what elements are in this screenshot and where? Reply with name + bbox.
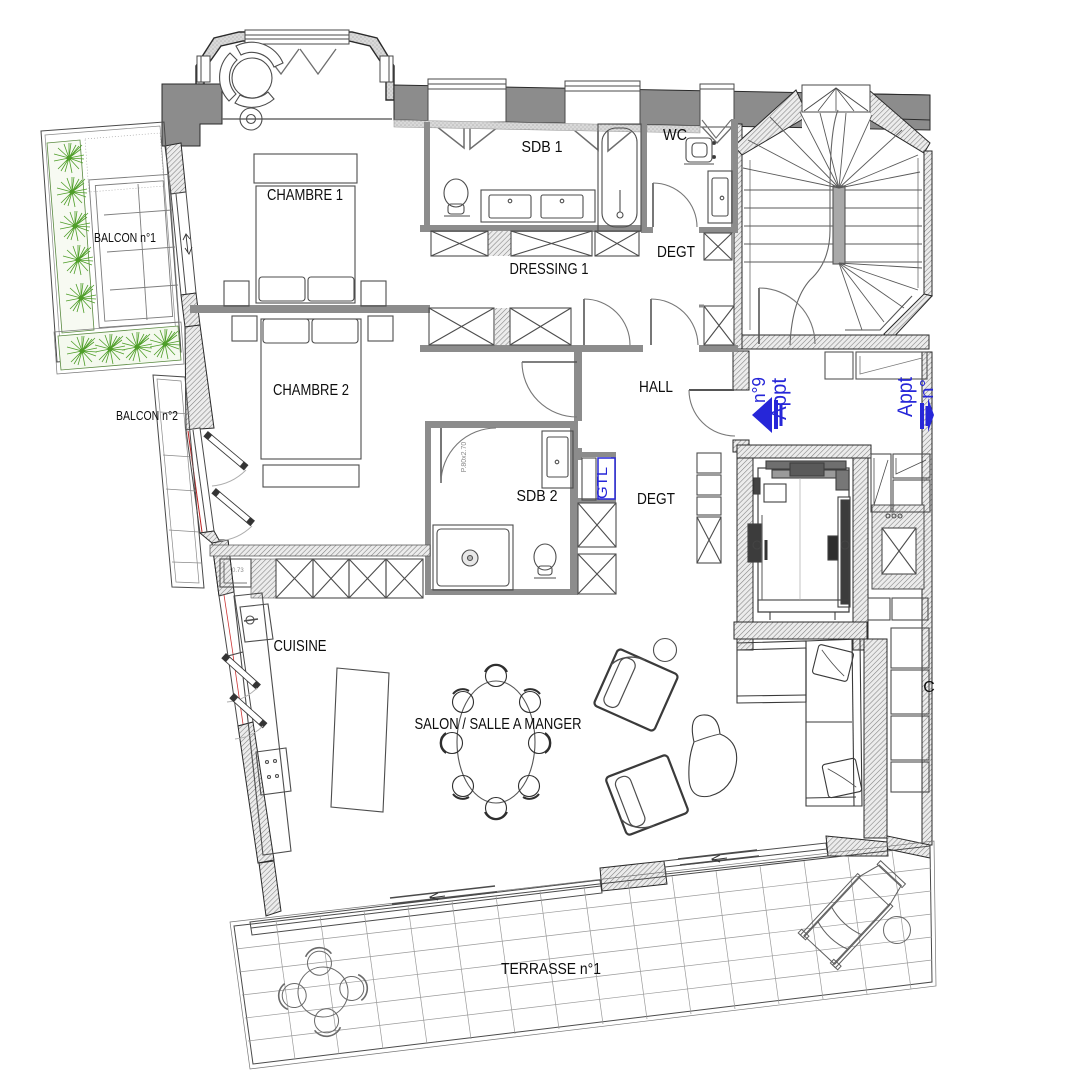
svg-text:DEGT: DEGT [637,491,675,508]
svg-text:C: C [923,679,935,696]
svg-text:GTL: GTL [594,467,611,499]
svg-text:DRESSING 1: DRESSING 1 [510,261,589,278]
svg-text:BALCON n°1: BALCON n°1 [94,230,156,245]
svg-text:WC: WC [663,127,687,144]
svg-text:n°: n° [917,379,937,399]
svg-text:SDB 2: SDB 2 [517,488,558,505]
svg-text:DEGT: DEGT [657,244,695,261]
svg-text:CUISINE: CUISINE [274,638,327,655]
svg-text:Appt: Appt [894,377,917,417]
svg-text:HALL: HALL [639,379,673,396]
svg-text:TERRASSE n°1: TERRASSE n°1 [501,961,601,978]
svg-text:0.73: 0.73 [232,568,244,574]
svg-text:BALCON n°2: BALCON n°2 [116,408,178,423]
svg-text:n°9: n°9 [749,377,769,403]
svg-text:CHAMBRE 2: CHAMBRE 2 [273,382,349,399]
svg-text:SALON / SALLE A MANGER: SALON / SALLE A MANGER [415,716,582,733]
svg-text:SDB 1: SDB 1 [522,139,563,156]
svg-text:P.80x2.70: P.80x2.70 [461,442,468,473]
svg-text:CHAMBRE 1: CHAMBRE 1 [267,187,343,204]
